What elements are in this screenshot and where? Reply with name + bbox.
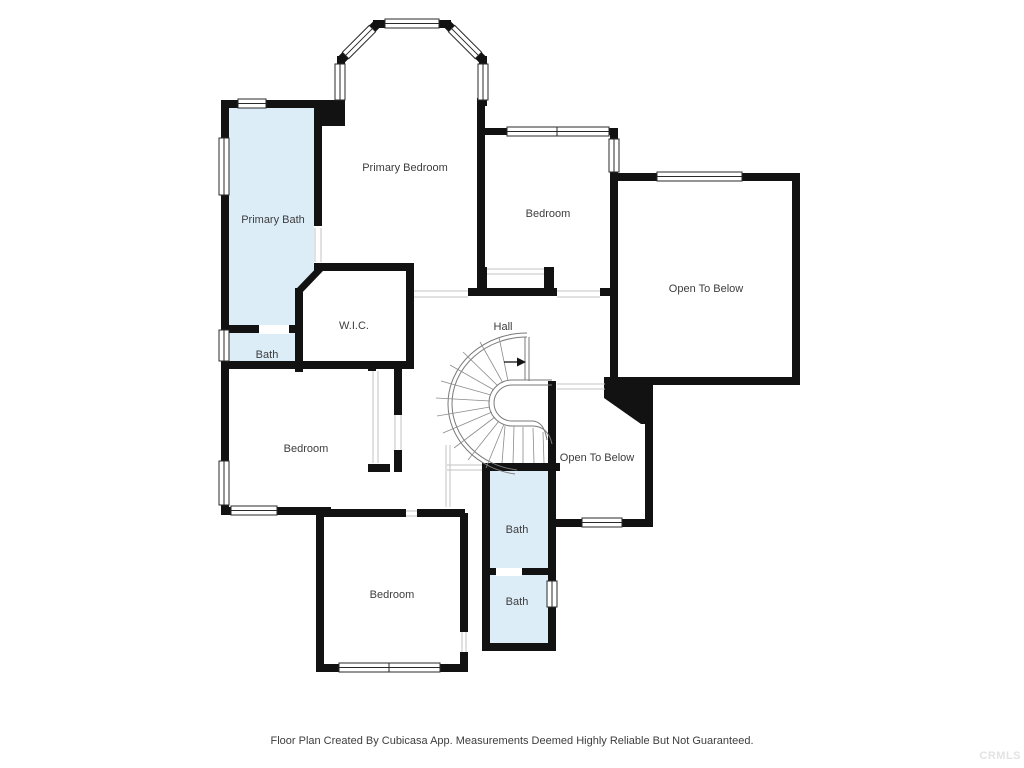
room-label-bedroom-top-right: Bedroom — [526, 208, 571, 220]
window — [657, 172, 742, 181]
window — [335, 64, 345, 100]
room-label-bedroom-mid-left: Bedroom — [284, 443, 329, 455]
window — [219, 138, 229, 195]
bath-floor-fills — [225, 104, 548, 647]
window — [582, 518, 622, 527]
floor-plan-canvas: Primary Bedroom Primary Bath Bedroom Ope… — [0, 0, 1024, 768]
crmls-watermark: CRMLS — [979, 750, 1021, 762]
room-label-bath-lower: Bath — [506, 596, 529, 608]
window — [609, 139, 619, 172]
bath-lower-floor — [486, 571, 548, 647]
window — [507, 127, 558, 136]
room-label-open-to-below-mid: Open To Below — [560, 452, 634, 464]
window — [219, 330, 229, 361]
window — [547, 581, 557, 607]
room-label-bedroom-bottom: Bedroom — [370, 589, 415, 601]
room-label-wic: W.I.C. — [339, 320, 369, 332]
stair-direction-arrow-icon — [504, 358, 526, 367]
window — [448, 25, 481, 58]
room-label-bath-left: Bath — [256, 349, 279, 361]
window — [478, 64, 488, 100]
room-label-bath-mid: Bath — [506, 524, 529, 536]
window — [219, 461, 229, 505]
room-label-hall: Hall — [494, 321, 513, 333]
spiral-staircase — [436, 333, 552, 474]
window — [339, 663, 390, 672]
window — [557, 127, 609, 136]
bath-mid-floor — [486, 470, 548, 571]
room-label-primary-bedroom: Primary Bedroom — [362, 162, 448, 174]
floor-plan-drawing — [0, 0, 1024, 768]
window — [231, 506, 277, 515]
room-label-primary-bath: Primary Bath — [241, 214, 305, 226]
window — [342, 25, 375, 58]
window — [389, 663, 440, 672]
room-label-open-to-below-top: Open To Below — [669, 283, 743, 295]
footer-disclaimer: Floor Plan Created By Cubicasa App. Meas… — [0, 735, 1024, 747]
window — [238, 99, 266, 108]
window — [385, 19, 439, 28]
